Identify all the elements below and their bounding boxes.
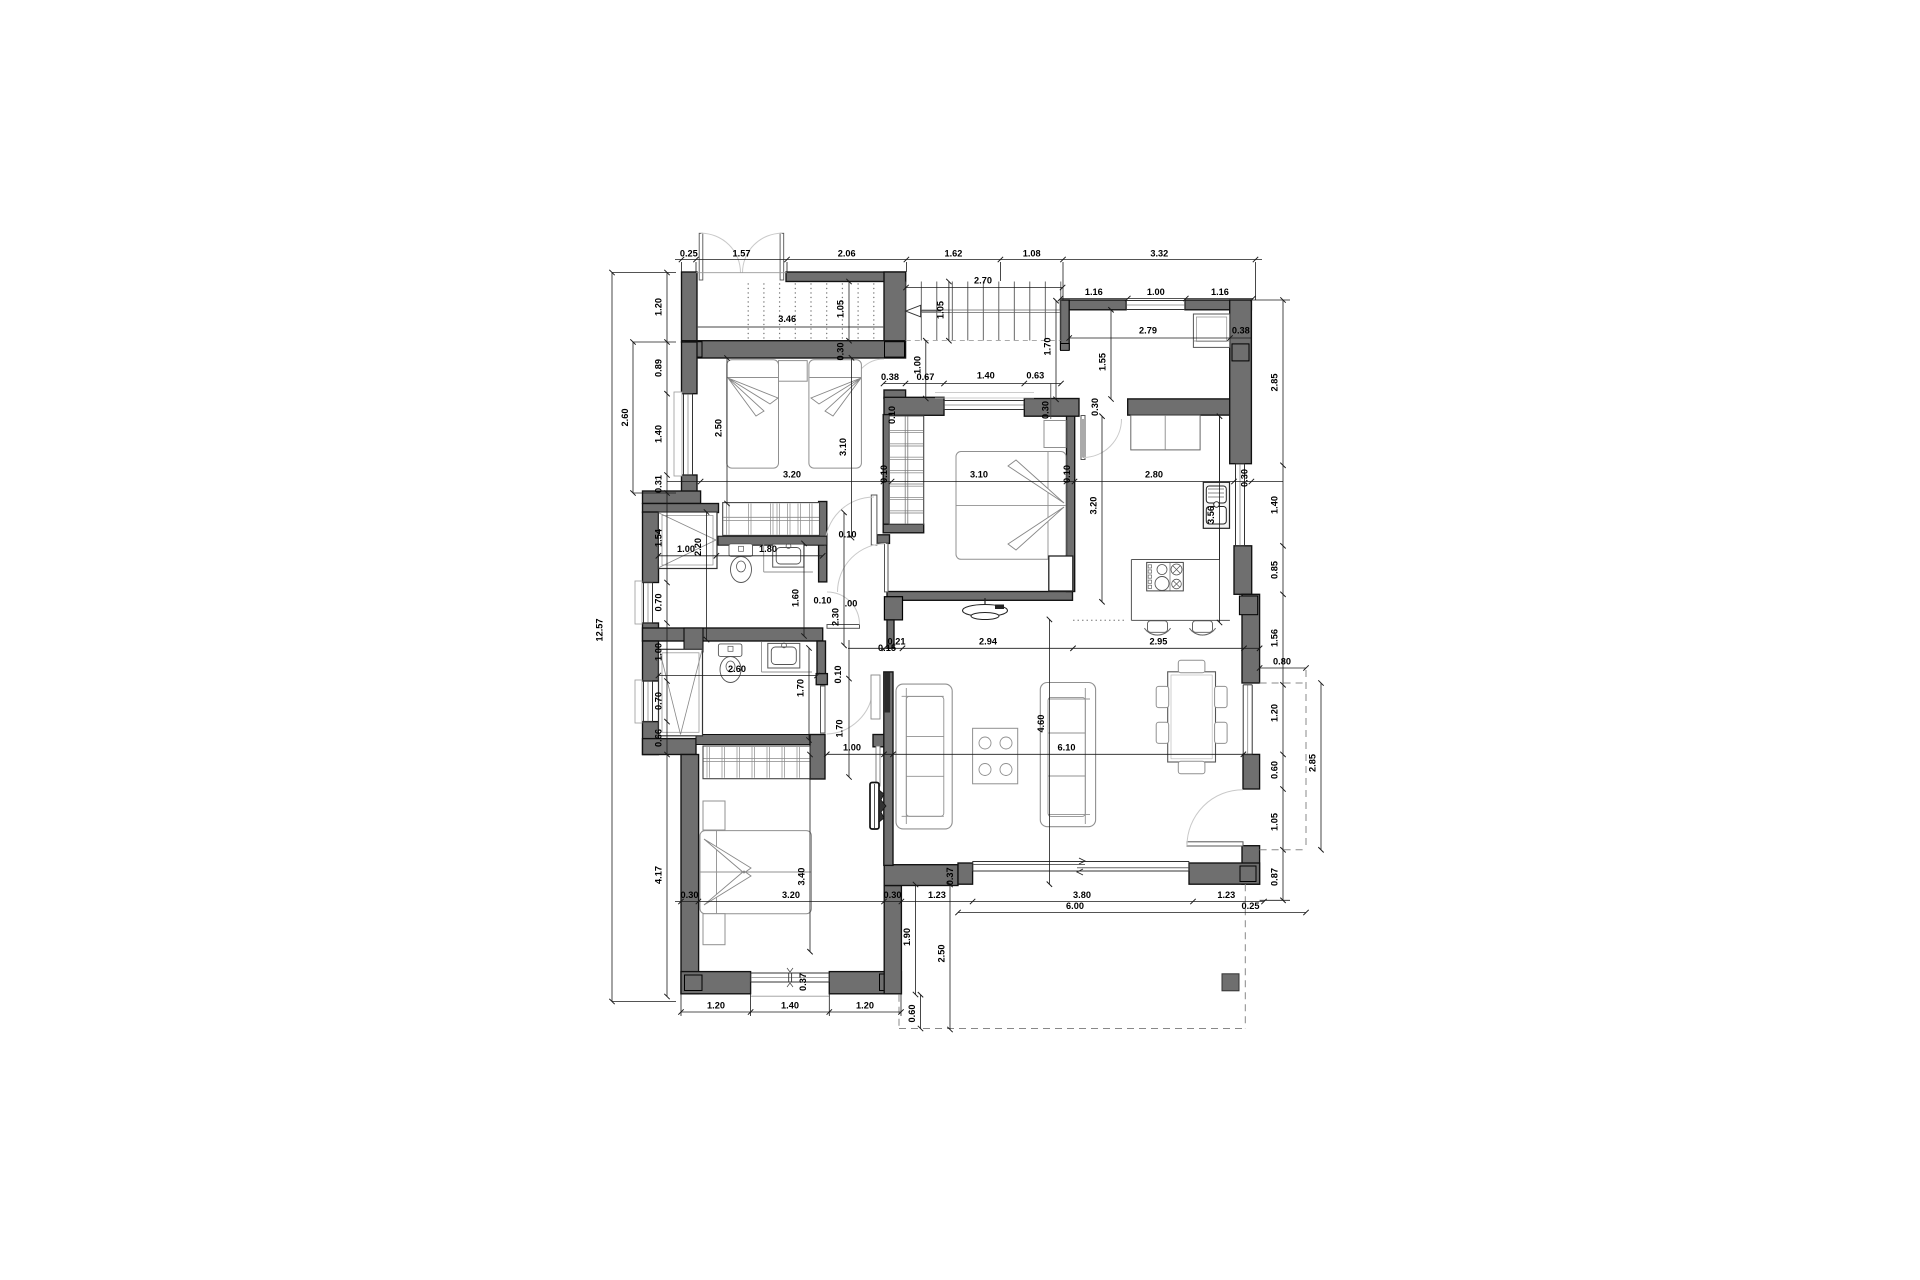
- svg-text:0.70: 0.70: [654, 594, 664, 612]
- svg-text:0.38: 0.38: [881, 372, 899, 382]
- svg-text:1.80: 1.80: [759, 544, 777, 554]
- svg-text:2.79: 2.79: [1139, 326, 1157, 336]
- svg-text:3.80: 3.80: [1073, 890, 1091, 900]
- svg-text:0.25: 0.25: [1242, 901, 1260, 911]
- svg-text:2.60: 2.60: [728, 664, 746, 674]
- svg-text:2.50: 2.50: [937, 945, 947, 963]
- svg-text:1.23: 1.23: [928, 890, 946, 900]
- svg-text:12.57: 12.57: [595, 619, 605, 642]
- svg-text:0.10: 0.10: [839, 529, 857, 539]
- svg-text:1.57: 1.57: [733, 249, 751, 259]
- svg-text:2.94: 2.94: [979, 637, 998, 647]
- svg-text:1.40: 1.40: [781, 1001, 799, 1011]
- svg-text:1.70: 1.70: [796, 679, 806, 697]
- svg-text:3.10: 3.10: [970, 470, 988, 480]
- svg-text:1.90: 1.90: [902, 928, 912, 946]
- svg-text:3.46: 3.46: [778, 314, 796, 324]
- svg-text:0.30: 0.30: [681, 890, 699, 900]
- svg-text:1.00: 1.00: [1147, 287, 1165, 297]
- svg-text:0.67: 0.67: [916, 372, 934, 382]
- svg-text:1.54: 1.54: [654, 528, 664, 547]
- svg-text:3.40: 3.40: [797, 868, 807, 886]
- svg-text:1.23: 1.23: [1217, 890, 1235, 900]
- svg-text:0.15: 0.15: [878, 643, 896, 653]
- svg-text:0.31: 0.31: [654, 475, 664, 493]
- svg-text:1.40: 1.40: [1270, 496, 1280, 514]
- svg-text:0.85: 0.85: [1270, 561, 1280, 579]
- svg-text:0.60: 0.60: [1270, 761, 1280, 779]
- svg-text:0.10: 0.10: [814, 596, 832, 606]
- svg-text:2.85: 2.85: [1270, 374, 1280, 392]
- svg-text:0.37: 0.37: [798, 973, 808, 991]
- svg-text:0.70: 0.70: [654, 692, 664, 710]
- svg-text:0.89: 0.89: [654, 359, 664, 377]
- svg-text:1.56: 1.56: [1270, 629, 1280, 647]
- svg-text:3.20: 3.20: [782, 890, 800, 900]
- svg-text:1.40: 1.40: [977, 370, 995, 380]
- svg-text:1.20: 1.20: [1270, 704, 1280, 722]
- svg-text:0.30: 0.30: [1040, 401, 1050, 419]
- svg-text:0.30: 0.30: [836, 343, 846, 361]
- svg-text:3.20: 3.20: [783, 470, 801, 480]
- svg-text:0.25: 0.25: [680, 249, 698, 259]
- svg-text:0.66: 0.66: [654, 729, 664, 747]
- svg-text:0.10: 0.10: [887, 406, 897, 424]
- svg-text:4.17: 4.17: [654, 866, 664, 884]
- svg-text:1.05: 1.05: [835, 300, 845, 318]
- svg-text:6.10: 6.10: [1058, 743, 1076, 753]
- svg-text:0.30: 0.30: [1090, 398, 1100, 416]
- svg-text:0.63: 0.63: [1026, 370, 1044, 380]
- svg-text:2.95: 2.95: [1149, 637, 1167, 647]
- svg-text:1.00: 1.00: [843, 743, 861, 753]
- svg-text:0.38: 0.38: [1232, 326, 1250, 336]
- svg-text:1.20: 1.20: [654, 298, 664, 316]
- svg-text:1.16: 1.16: [1211, 287, 1229, 297]
- svg-text:3.56: 3.56: [1206, 506, 1216, 524]
- svg-text:6.00: 6.00: [1066, 901, 1084, 911]
- svg-text:0.80: 0.80: [1273, 657, 1291, 667]
- svg-text:1.70: 1.70: [835, 720, 845, 738]
- svg-text:1.20: 1.20: [707, 1001, 725, 1011]
- svg-text:0.37: 0.37: [945, 867, 955, 885]
- svg-text:0.60: 0.60: [907, 1005, 917, 1023]
- svg-text:.00: .00: [845, 599, 858, 609]
- svg-text:0.30: 0.30: [1240, 469, 1250, 487]
- svg-text:0.87: 0.87: [1270, 868, 1280, 886]
- svg-text:1.40: 1.40: [654, 425, 664, 443]
- svg-text:3.20: 3.20: [1089, 497, 1099, 515]
- svg-text:1.62: 1.62: [944, 249, 962, 259]
- svg-text:2.50: 2.50: [714, 419, 724, 437]
- svg-text:2.20: 2.20: [693, 538, 703, 556]
- svg-text:2.80: 2.80: [1145, 470, 1163, 480]
- svg-text:1.05: 1.05: [1270, 813, 1280, 831]
- svg-text:1.16: 1.16: [1085, 287, 1103, 297]
- svg-text:1.20: 1.20: [856, 1001, 874, 1011]
- svg-text:0.10: 0.10: [879, 465, 889, 483]
- svg-text:3.32: 3.32: [1150, 249, 1168, 259]
- svg-text:1.00: 1.00: [654, 643, 664, 661]
- svg-text:2.06: 2.06: [838, 249, 856, 259]
- svg-text:1.70: 1.70: [1042, 338, 1052, 356]
- svg-text:1.55: 1.55: [1098, 353, 1108, 371]
- svg-text:1.60: 1.60: [791, 589, 801, 607]
- svg-text:2.60: 2.60: [620, 409, 630, 427]
- svg-text:0.10: 0.10: [1062, 465, 1072, 483]
- svg-text:2.70: 2.70: [974, 276, 992, 286]
- svg-text:3.10: 3.10: [838, 438, 848, 456]
- svg-text:4.60: 4.60: [1036, 715, 1046, 733]
- svg-text:0.30: 0.30: [884, 890, 902, 900]
- svg-text:2.30: 2.30: [831, 608, 841, 626]
- svg-text:1.08: 1.08: [1023, 249, 1041, 259]
- svg-text:0.10: 0.10: [833, 666, 843, 684]
- svg-text:2.85: 2.85: [1308, 754, 1318, 772]
- svg-text:1.05: 1.05: [935, 301, 945, 319]
